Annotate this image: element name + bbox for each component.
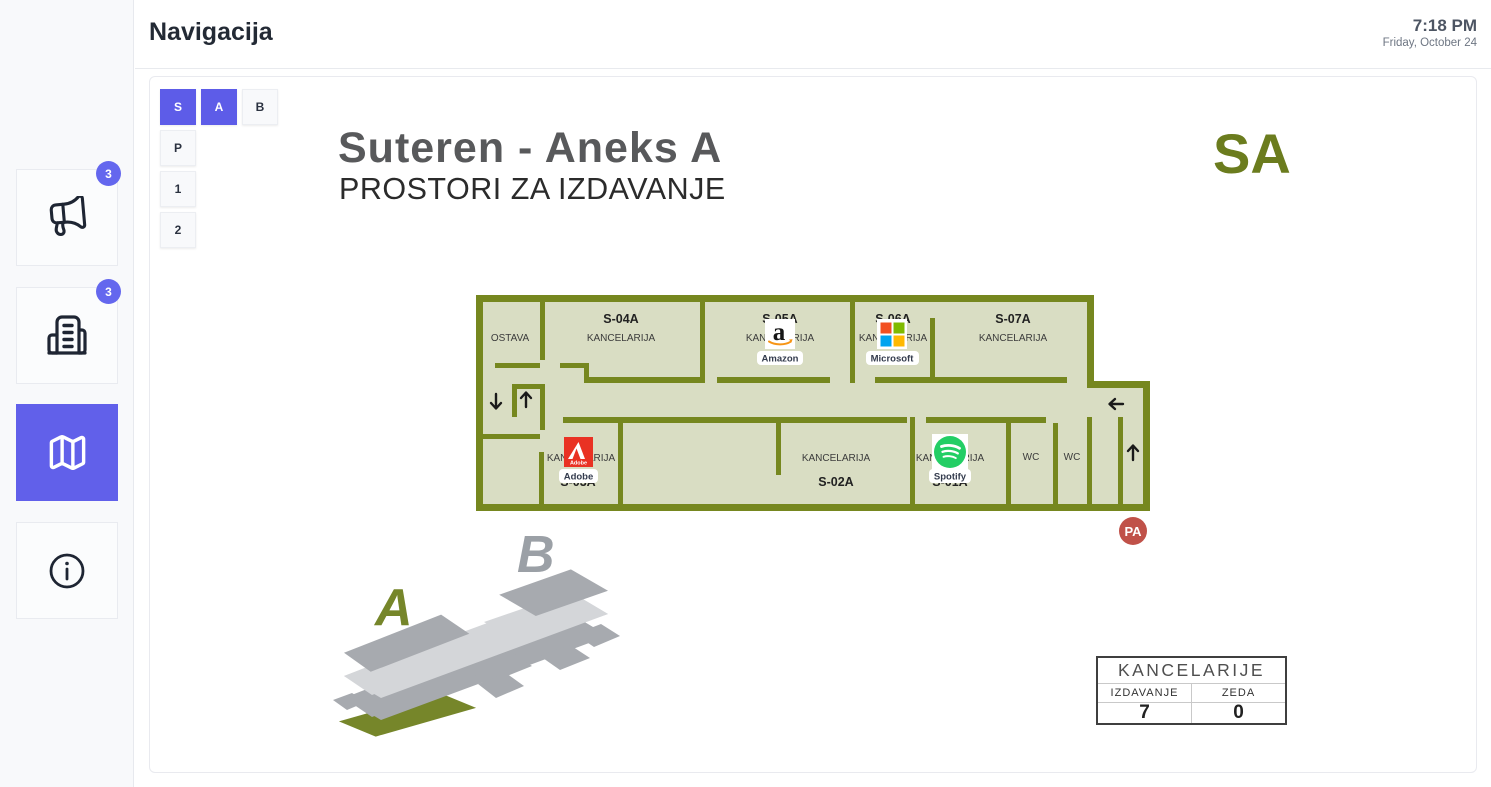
- svg-text:Spotify: Spotify: [934, 472, 967, 483]
- svg-text:KANCELARIJA: KANCELARIJA: [979, 333, 1048, 344]
- svg-text:Amazon: Amazon: [762, 354, 799, 365]
- svg-text:WC: WC: [1064, 452, 1081, 463]
- svg-text:a: a: [773, 319, 786, 346]
- svg-text:S-04A: S-04A: [603, 312, 638, 326]
- svg-text:OSTAVA: OSTAVA: [491, 333, 530, 344]
- svg-text:Adobe: Adobe: [564, 472, 594, 483]
- svg-text:KANCELARIJA: KANCELARIJA: [802, 453, 871, 464]
- svg-text:S-02A: S-02A: [818, 475, 853, 489]
- svg-text:Adobe: Adobe: [570, 461, 587, 467]
- svg-text:KANCELARIJA: KANCELARIJA: [587, 333, 656, 344]
- svg-text:S-07A: S-07A: [995, 312, 1030, 326]
- svg-text:Microsoft: Microsoft: [871, 354, 915, 365]
- svg-text:PA: PA: [1124, 524, 1142, 539]
- svg-text:WC: WC: [1023, 452, 1040, 463]
- svg-text:B: B: [517, 526, 555, 584]
- svg-text:A: A: [373, 579, 413, 637]
